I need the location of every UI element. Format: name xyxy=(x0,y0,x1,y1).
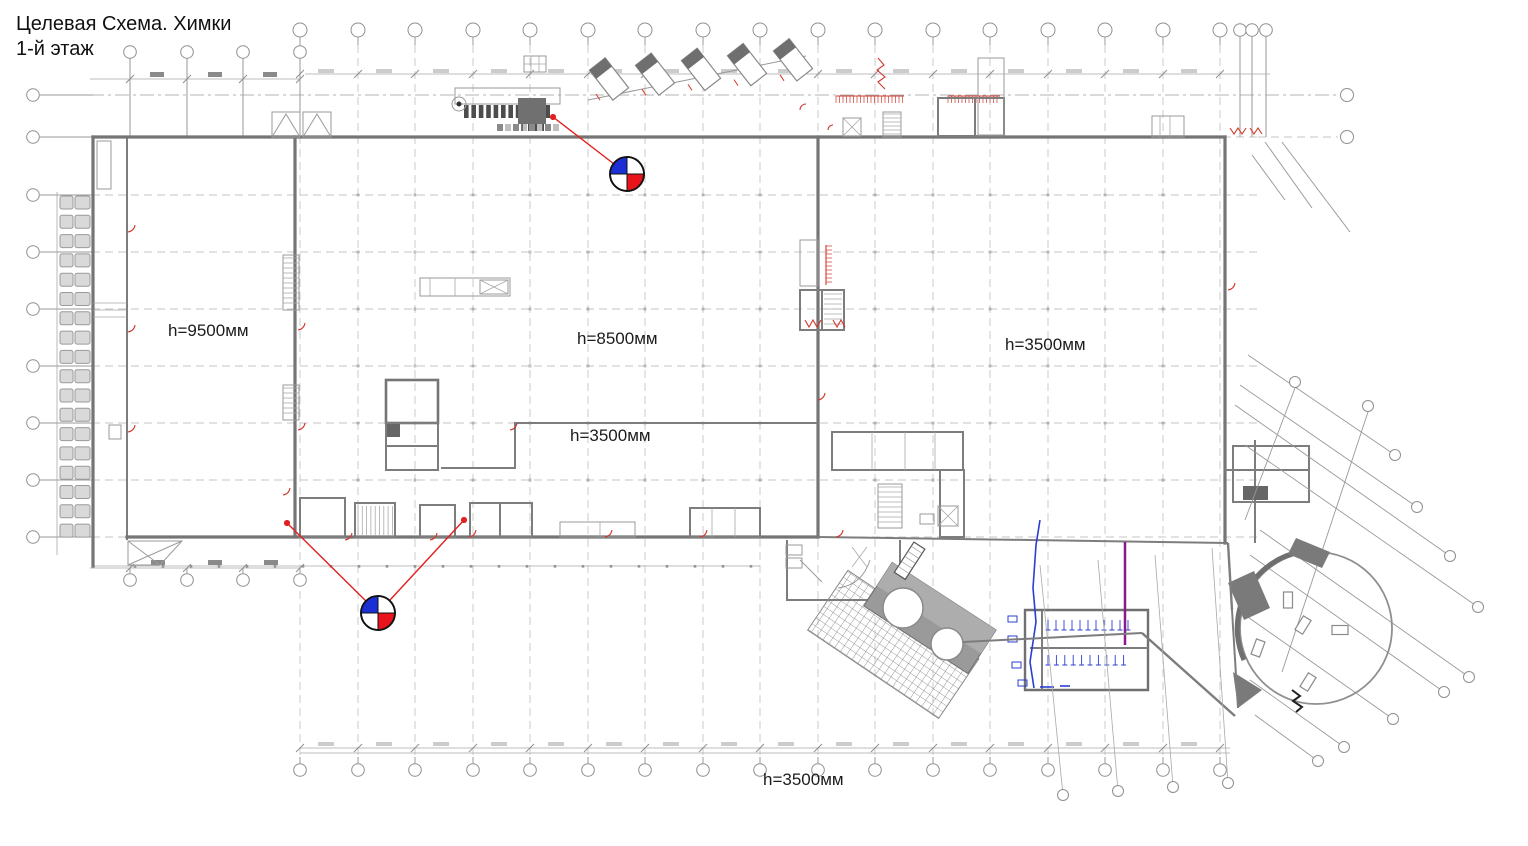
rotated-wing xyxy=(1228,355,1484,767)
top-right-rooms xyxy=(800,58,1350,232)
title-line-1: Целевая Схема. Химки xyxy=(16,12,231,37)
drawing-title: Целевая Схема. Химки 1-й этаж xyxy=(16,12,231,62)
height-label-8500: h=8500мм xyxy=(577,329,658,348)
dimension-lines xyxy=(90,69,1270,753)
height-label-3500-right: h=3500мм xyxy=(1005,335,1086,354)
stair-core xyxy=(800,240,845,330)
south-annex xyxy=(786,520,1235,801)
survey-marker-top xyxy=(550,114,644,191)
floor-plan: h=9500мм h=8500мм h=3500мм h=3500мм h=35… xyxy=(0,0,1528,846)
height-label-3500-bottom: h=3500мм xyxy=(763,770,844,789)
drawing-canvas: h=9500мм h=8500мм h=3500мм h=3500мм h=35… xyxy=(0,0,1528,846)
top-equipment xyxy=(272,56,806,137)
height-label-9500: h=9500мм xyxy=(168,321,249,340)
grid-lines xyxy=(40,45,1338,768)
center-rooms xyxy=(283,255,510,470)
title-line-2: 1-й этаж xyxy=(16,37,231,62)
height-label-3500-center: h=3500мм xyxy=(570,426,651,445)
bottom-rooms xyxy=(300,432,1309,537)
truck-parking xyxy=(57,141,182,565)
